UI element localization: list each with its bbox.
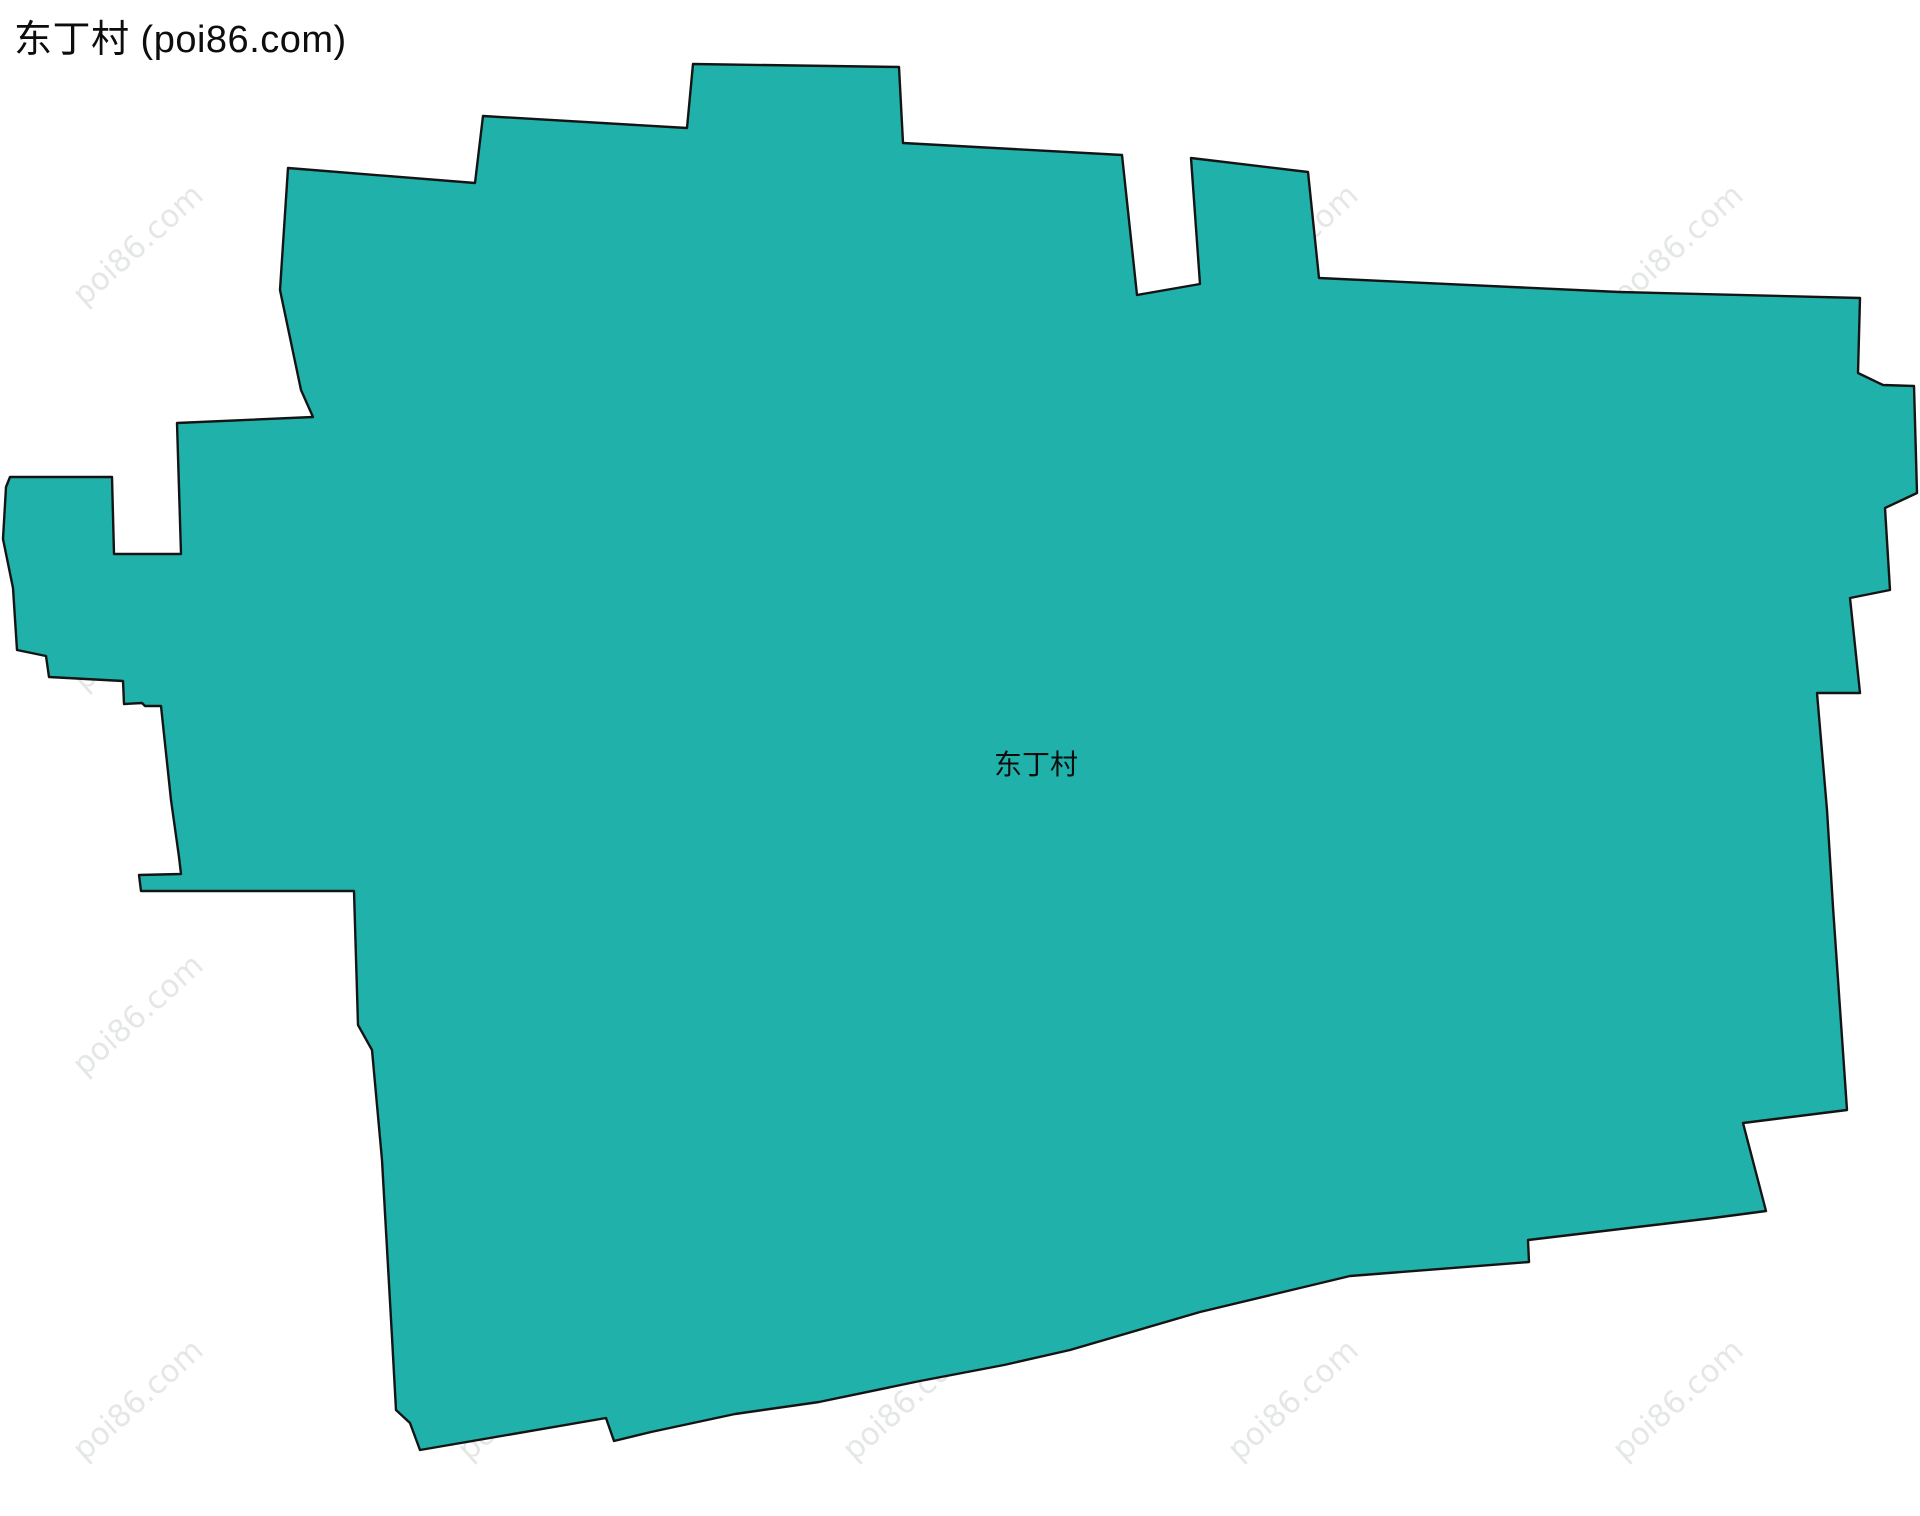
region-boundary-polygon bbox=[3, 64, 1917, 1450]
region-label: 东丁村 bbox=[994, 743, 1078, 783]
map-page: poi86.compoi86.compoi86.compoi86.compoi8… bbox=[0, 0, 1920, 1516]
map-canvas bbox=[0, 0, 1920, 1516]
page-title: 东丁村 (poi86.com) bbox=[14, 8, 347, 63]
